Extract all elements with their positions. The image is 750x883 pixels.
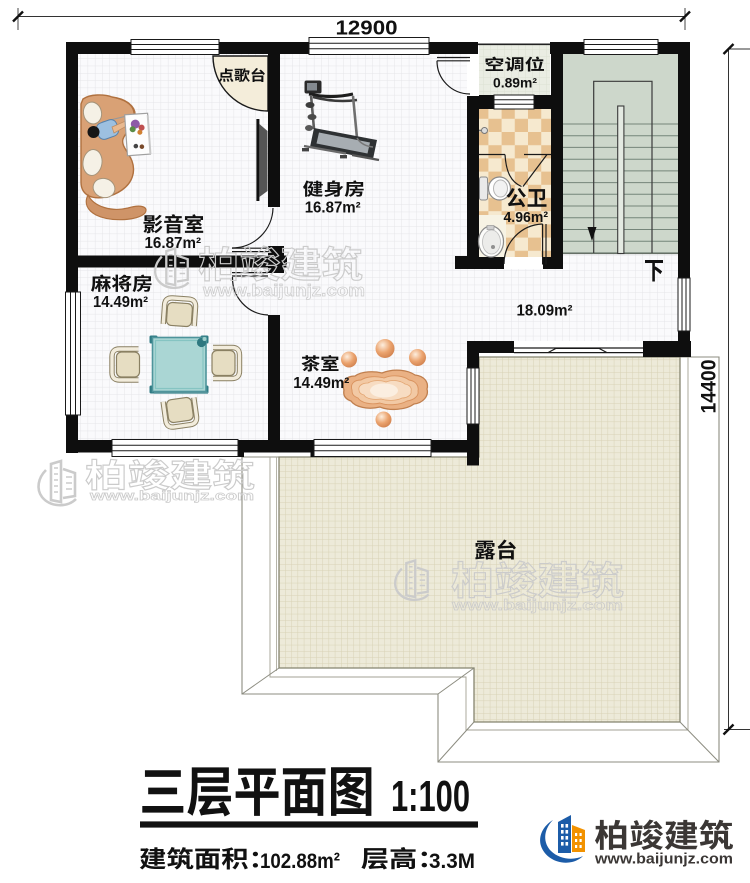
svg-text:102.88m²: 102.88m² (260, 849, 340, 873)
svg-text:18.09m²: 18.09m² (517, 303, 573, 320)
svg-text:14400: 14400 (698, 360, 721, 414)
svg-text:www.baijunjz.com: www.baijunjz.com (202, 282, 365, 300)
svg-text:www.baijunjz.com: www.baijunjz.com (594, 851, 733, 868)
svg-text:14.49m²: 14.49m² (93, 294, 148, 311)
svg-text:www.baijunjz.com: www.baijunjz.com (88, 489, 254, 503)
svg-text:www.baijunjz.com: www.baijunjz.com (451, 597, 623, 614)
svg-text:1:100: 1:100 (391, 772, 470, 821)
svg-text:14.49m²: 14.49m² (293, 375, 349, 392)
svg-text:12900: 12900 (336, 18, 398, 40)
svg-text:16.87m²: 16.87m² (305, 200, 361, 217)
svg-text:4.96m²: 4.96m² (504, 209, 549, 226)
svg-text:0.89m²: 0.89m² (493, 75, 537, 91)
svg-text:3.3M: 3.3M (429, 849, 475, 873)
